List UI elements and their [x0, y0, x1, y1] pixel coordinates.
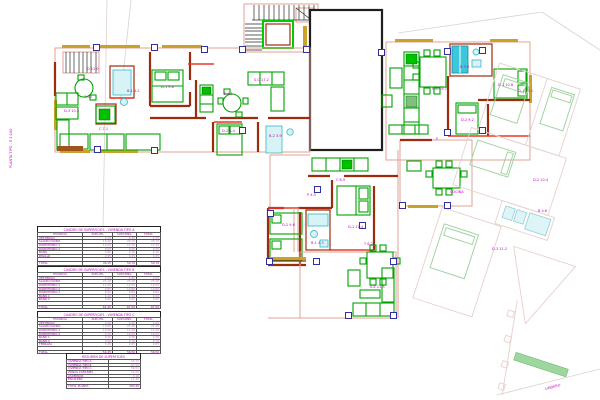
- room-label: S-E 21.3: [370, 286, 385, 290]
- floorplan-canvas: CUADRO DE SUPERFICIES - VIVIENDA TIPO AE…: [0, 0, 600, 400]
- room-label: E: [436, 138, 438, 142]
- void-room: [310, 10, 382, 150]
- room-label: T 6.2: [364, 243, 373, 247]
- row-label: TOTAL: [38, 261, 83, 265]
- annex-kitchen: [400, 140, 472, 208]
- elevator-shaft: [263, 21, 293, 48]
- room-label: D-1 10.8: [498, 84, 513, 88]
- column-marker: [266, 258, 273, 265]
- room-label: S-C 17.2: [254, 79, 269, 83]
- column-marker: [479, 47, 486, 54]
- column-marker: [444, 48, 451, 55]
- unit-d-rotated: [393, 60, 600, 400]
- row-value: 61.45: [83, 305, 113, 309]
- bathtub: [266, 126, 282, 153]
- column-marker: [345, 312, 352, 319]
- row-value: 50.70: [136, 261, 160, 265]
- row-value: 67.50: [136, 305, 160, 309]
- room-label: D-2 9.2: [461, 119, 474, 123]
- column-marker: [399, 202, 406, 209]
- room-label: D-1 10.1: [518, 90, 533, 94]
- stair-core: [244, 4, 318, 52]
- column-marker: [94, 146, 101, 153]
- column-marker: [151, 44, 158, 51]
- room-label: 3.60: [84, 96, 92, 100]
- column-marker: [239, 127, 246, 134]
- room-label: D 11.0: [87, 68, 99, 72]
- area-table-c: CUADRO DE SUPERFICIES - VIVIENDA TIPO CE…: [37, 311, 161, 354]
- room-label: B 4.6: [538, 210, 547, 214]
- room-label: B 3.9: [460, 66, 469, 70]
- unit-c: [382, 39, 532, 208]
- row-value: 50.70: [112, 261, 136, 265]
- living-room: [270, 245, 400, 318]
- unit-a: [54, 45, 310, 155]
- column-marker: [314, 186, 321, 193]
- column-marker: [444, 129, 451, 136]
- room-label: D-3 11.2: [492, 248, 507, 252]
- summary-table: RESUMEN DE SUPERFICIESVIVIENDA TIPO A50.…: [66, 353, 141, 389]
- column-marker: [303, 46, 310, 53]
- room-label: C 7.1: [99, 128, 108, 132]
- row-label: TOTAL PLANTA: [67, 385, 109, 389]
- room-label: P 4.0: [307, 194, 316, 198]
- row-label: TOTAL: [38, 305, 83, 309]
- column-marker: [267, 210, 274, 217]
- column-marker: [93, 44, 100, 51]
- column-marker: [390, 312, 397, 319]
- shelf: [57, 146, 83, 151]
- row-value: 46.15: [83, 261, 113, 265]
- round-table: [218, 89, 248, 117]
- room-label: D-2 8.4: [222, 130, 235, 134]
- room-label: D-2 9.6: [282, 224, 295, 228]
- room-label: D-3 10.2: [64, 110, 79, 114]
- room-label: D-1 9.8: [161, 86, 174, 90]
- column-marker: [390, 258, 397, 265]
- area-table-b: CUADRO DE SUPERFICIES - VIVIENDA TIPO BE…: [37, 266, 161, 309]
- bed: [337, 186, 370, 215]
- twin-beds: [270, 213, 302, 260]
- column-marker: [201, 46, 208, 53]
- toilet: [121, 99, 128, 106]
- room-label: C 8.9: [336, 179, 345, 183]
- stair-treads-left: [245, 24, 262, 50]
- column-marker: [151, 147, 158, 154]
- column-marker: [313, 258, 320, 265]
- terrace-strip: [514, 352, 569, 377]
- column-marker: [239, 46, 246, 53]
- sofa-group: [56, 72, 284, 150]
- area-table-a: CUADRO DE SUPERFICIES - VIVIENDA TIPO AE…: [37, 226, 161, 266]
- stair-treads-top: [254, 5, 314, 20]
- column-marker: [378, 49, 385, 56]
- room-label: COCINA: [450, 191, 464, 195]
- column-marker: [444, 202, 451, 209]
- room-label: E 4.1: [224, 93, 233, 97]
- room-label: D-2 10.4: [533, 179, 548, 183]
- room-label: B-1 4.2: [127, 90, 140, 94]
- room-label: PLANTA TIPO - E 1:100: [10, 129, 14, 168]
- unit-b: [268, 150, 400, 318]
- kitchen-counter: [312, 158, 368, 171]
- row-value: 67.50: [112, 305, 136, 309]
- room-label: B-1 4.3: [311, 242, 324, 246]
- room-label: D-1 11.4: [348, 226, 363, 230]
- room-label: B-2 3.9: [269, 135, 282, 139]
- sofa: [389, 125, 428, 134]
- room-label: S-C 19.7: [432, 88, 447, 92]
- column-marker: [479, 127, 486, 134]
- row-value: 203.45: [109, 385, 141, 389]
